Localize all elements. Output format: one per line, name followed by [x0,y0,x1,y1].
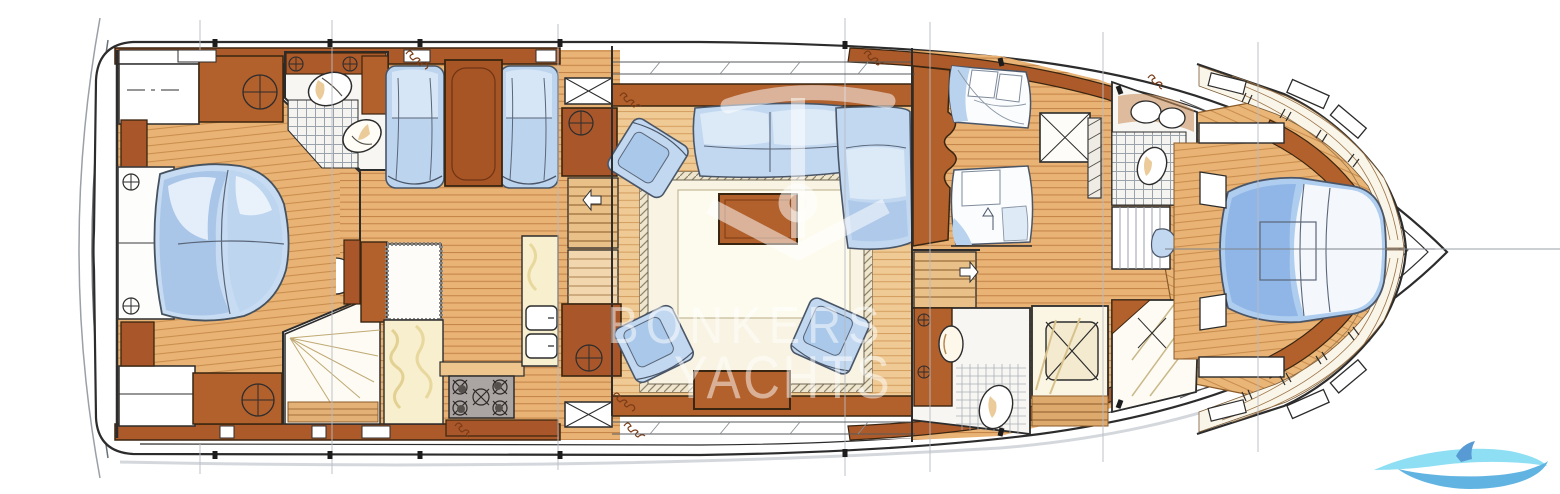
svg-text:YACHTS: YACHTS [674,344,892,411]
